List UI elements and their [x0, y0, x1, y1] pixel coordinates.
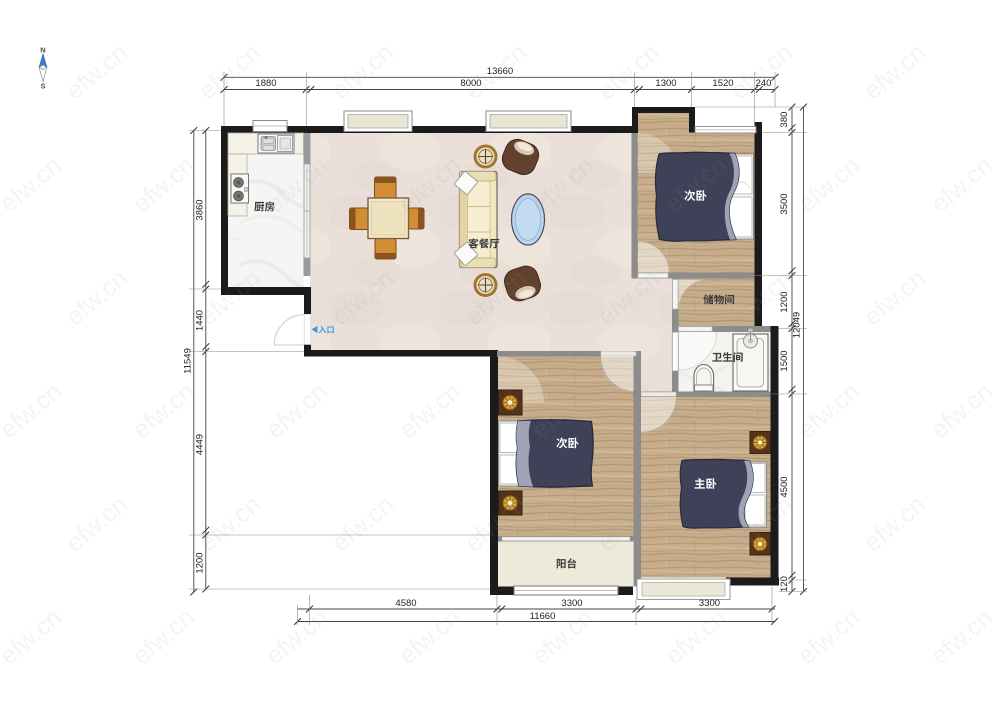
svg-text:12049: 12049: [792, 312, 803, 338]
svg-text:3500: 3500: [779, 193, 790, 214]
svg-text:3860: 3860: [195, 199, 206, 220]
svg-text:1500: 1500: [779, 350, 790, 371]
svg-text:4449: 4449: [195, 434, 206, 455]
svg-text:11549: 11549: [183, 348, 194, 374]
svg-text:4580: 4580: [395, 598, 416, 609]
svg-text:1200: 1200: [195, 552, 206, 573]
svg-text:1300: 1300: [655, 78, 676, 89]
svg-text:1880: 1880: [255, 78, 276, 89]
svg-text:11660: 11660: [530, 611, 556, 622]
svg-text:120: 120: [779, 576, 790, 592]
svg-text:S: S: [40, 82, 45, 91]
svg-text:380: 380: [779, 112, 790, 128]
